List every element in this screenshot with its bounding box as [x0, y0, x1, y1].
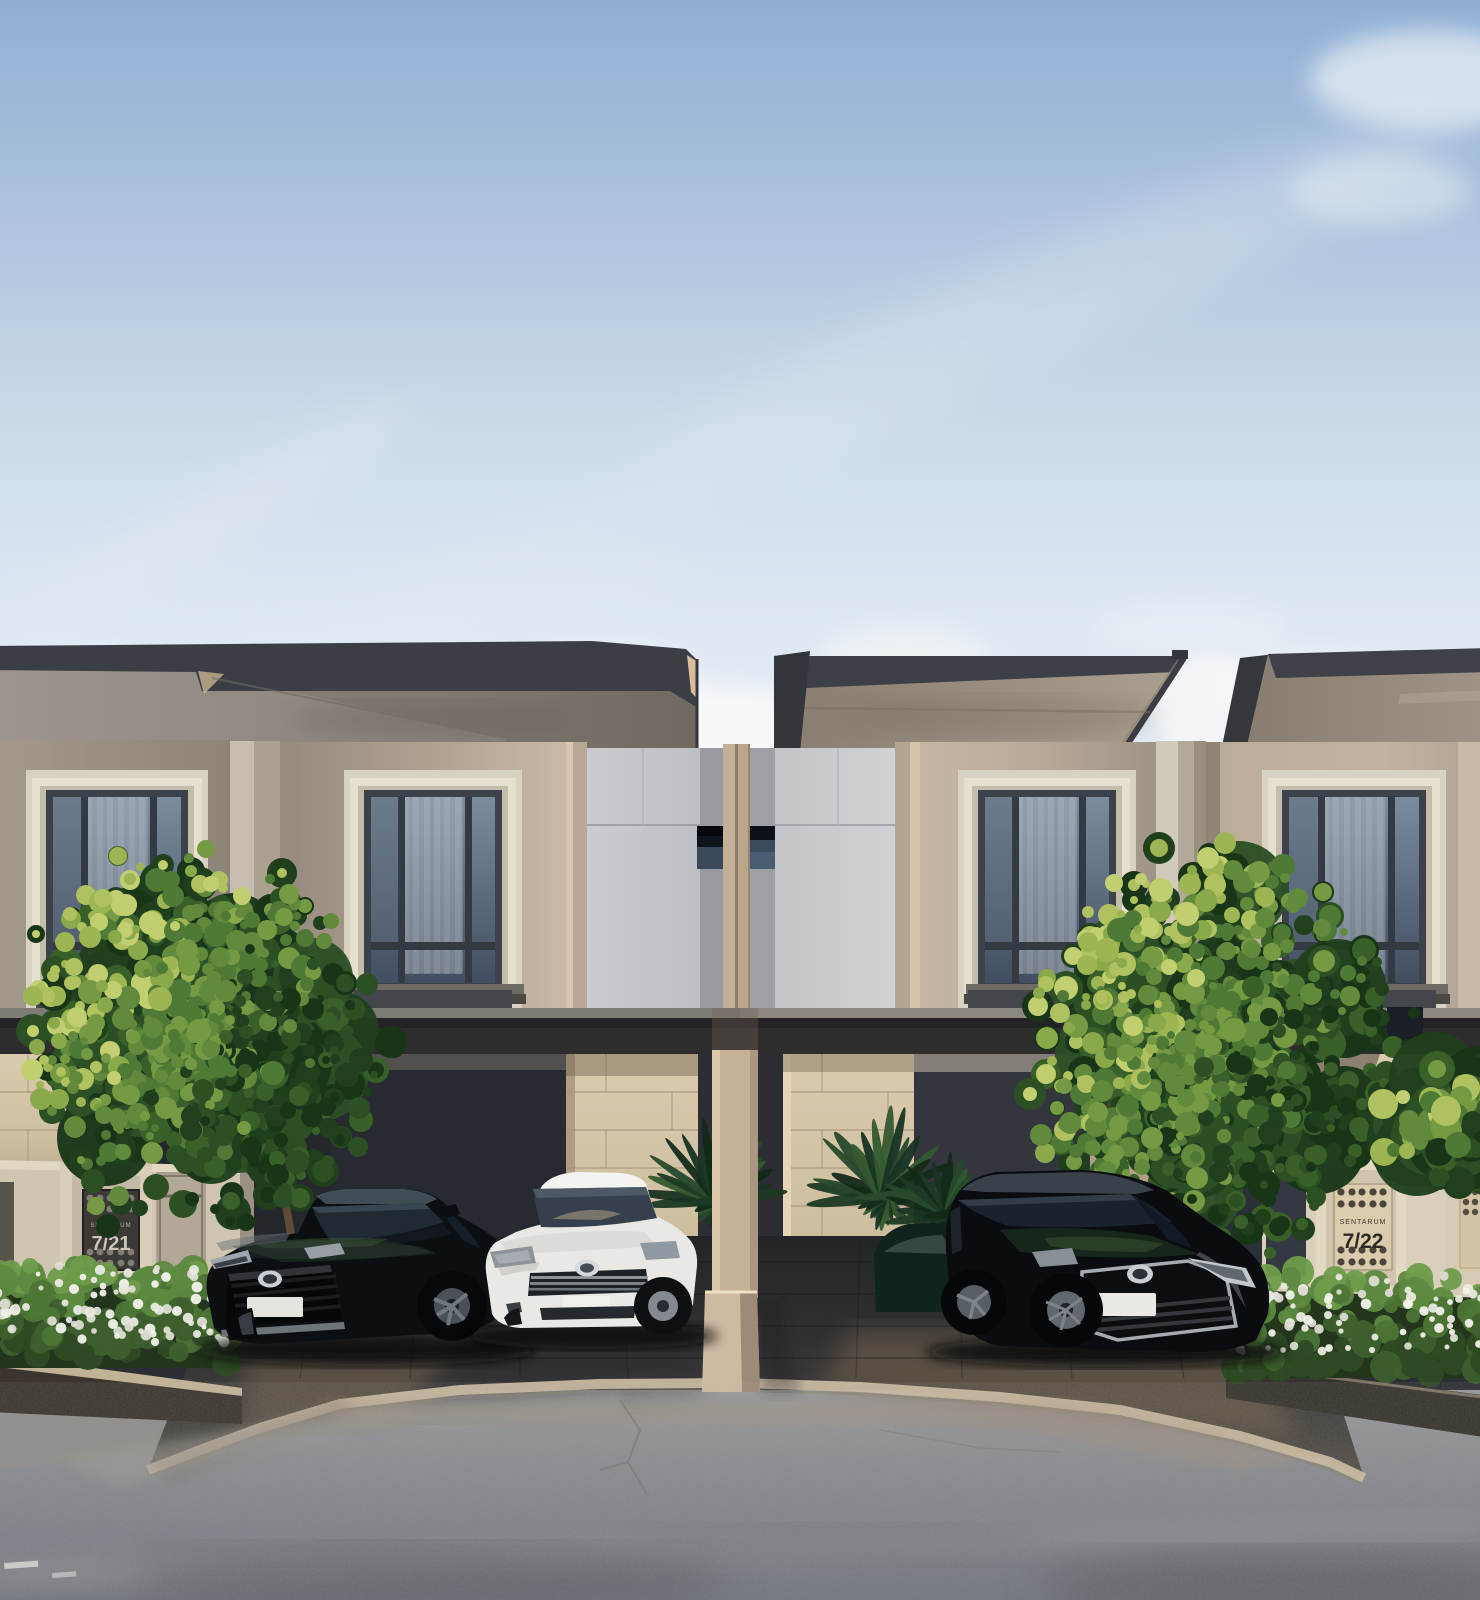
svg-text:7/22: 7/22 [1343, 1230, 1384, 1253]
svg-text:SENTARUM: SENTARUM [1340, 1219, 1387, 1226]
